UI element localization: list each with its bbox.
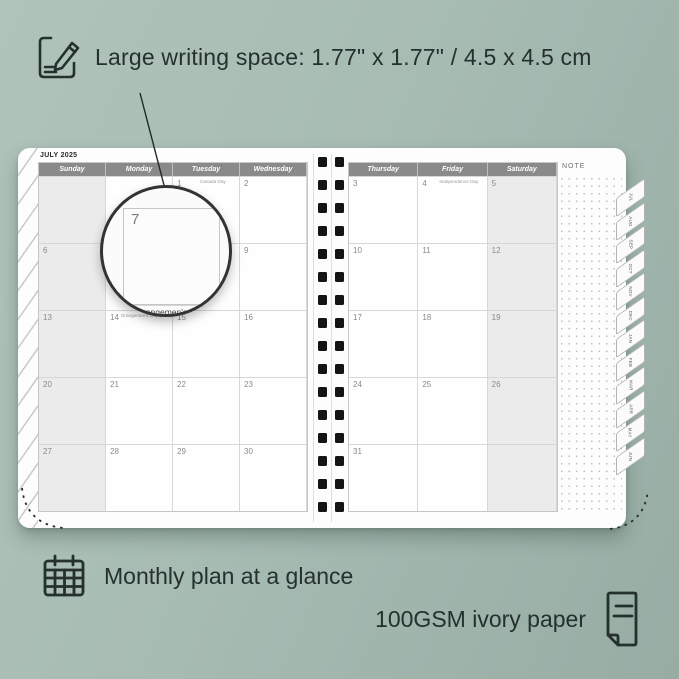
paper-sheet-icon (602, 591, 642, 647)
day-number: 17 (353, 313, 362, 322)
binding-hole (318, 157, 327, 167)
top-annotation: Large writing space: 1.77" x 1.77" / 4.5… (36, 33, 592, 81)
note-label: NOTE (562, 163, 585, 170)
day-number: 4 (422, 179, 426, 188)
binding-hole (318, 479, 327, 489)
binding-hole (335, 180, 344, 190)
calendar-cell: 9 (240, 243, 307, 310)
day-number: 20 (43, 380, 52, 389)
calendar-cell: 23 (240, 377, 307, 444)
binding-hole (335, 502, 344, 512)
day-number: 24 (353, 380, 362, 389)
day-header: Saturday (488, 163, 557, 176)
month-tab-label: JAN (628, 334, 633, 343)
binding-hole (318, 456, 327, 466)
binding-hole (335, 226, 344, 236)
binding-hole (335, 387, 344, 397)
day-number: 9 (244, 246, 248, 255)
day-number: 28 (110, 447, 119, 456)
calendar-cell: 15 (173, 310, 240, 377)
day-header: Sunday (39, 163, 106, 176)
binding-hole (318, 318, 327, 328)
magnifier-circle: 7 Orangemen's D (100, 185, 232, 317)
day-number: 10 (353, 246, 362, 255)
page-edge-hatching (18, 148, 38, 528)
day-number: 11 (422, 246, 430, 255)
binding-hole (318, 502, 327, 512)
calendar-cell (39, 176, 106, 243)
bottom-left-annotation: Monthly plan at a glance (42, 553, 353, 599)
calendar-cell: 27 (39, 444, 106, 511)
binding-hole (335, 318, 344, 328)
day-number: 2 (244, 179, 248, 188)
day-header-label: Wednesday (254, 166, 293, 173)
page-inner-edge (313, 154, 314, 522)
day-number: 13 (43, 313, 52, 322)
calendar-grid-right: ThursdayFridaySaturday34Independence Day… (348, 162, 558, 512)
day-header-label: Saturday (507, 166, 537, 173)
day-number: 31 (353, 447, 362, 456)
month-tab-label: OCT (628, 263, 633, 273)
calendar-cell: 14Orangemen's Day (N.L.) (106, 310, 173, 377)
day-number: 16 (244, 313, 253, 322)
month-tab-label: APR (628, 404, 633, 414)
calendar-cell: 24 (349, 377, 418, 444)
binding-hole (318, 410, 327, 420)
calendar-cell: 3 (349, 176, 418, 243)
day-number: 29 (177, 447, 186, 456)
calendar-cell: 19 (488, 310, 557, 377)
binding-hole (335, 249, 344, 259)
day-header-label: Monday (126, 166, 152, 173)
calendar-cell: 30 (240, 444, 307, 511)
binding-hole (318, 364, 327, 374)
day-header: Friday (418, 163, 487, 176)
day-number: 25 (422, 380, 431, 389)
day-header: Tuesday (173, 163, 240, 176)
calendar-cell: 26 (488, 377, 557, 444)
calendar-cell: 21 (106, 377, 173, 444)
binding-hole (318, 249, 327, 259)
day-header-label: Friday (442, 166, 463, 173)
binding-hole (335, 433, 344, 443)
calendar-cell: 11 (418, 243, 487, 310)
calendar-cell: 28 (106, 444, 173, 511)
day-number: 30 (244, 447, 253, 456)
month-tab-label: NOV (628, 286, 633, 296)
top-annotation-text: Large writing space: 1.77" x 1.77" / 4.5… (95, 44, 592, 71)
planner-spread: JULY 2025 SundayMondayTuesdayWednesday1C… (18, 148, 626, 528)
calendar-cell: 29 (173, 444, 240, 511)
calendar-cell: 17 (349, 310, 418, 377)
day-number: 3 (353, 179, 357, 188)
binding-hole (318, 341, 327, 351)
binding-hole (335, 272, 344, 282)
binding-hole (335, 203, 344, 213)
day-header-label: Sunday (59, 166, 84, 173)
note-dot-grid (558, 175, 622, 512)
bottom-left-text: Monthly plan at a glance (104, 563, 353, 590)
calendar-cell (418, 444, 487, 511)
day-number: 5 (492, 179, 496, 188)
product-image: Large writing space: 1.77" x 1.77" / 4.5… (0, 0, 679, 679)
note-pencil-icon (36, 33, 82, 81)
binding-hole (335, 410, 344, 420)
calendar-cell: 4Independence Day (418, 176, 487, 243)
binding-hole (318, 203, 327, 213)
month-tab-label: MAY (628, 427, 633, 437)
binding-hole (335, 157, 344, 167)
binding-hole (318, 387, 327, 397)
day-header-label: Thursday (367, 166, 399, 173)
calendar-cell: 20 (39, 377, 106, 444)
calendar-cell: 6 (39, 243, 106, 310)
day-number: 12 (492, 246, 501, 255)
day-number: 6 (43, 246, 47, 255)
page-inner-edge (331, 154, 332, 522)
month-tab-label: SEP (628, 240, 633, 250)
day-header: Thursday (349, 163, 418, 176)
calendar-grid-icon (42, 553, 86, 599)
binding-hole (318, 226, 327, 236)
calendar-cell: 12 (488, 243, 557, 310)
month-tab-label: JUN (628, 451, 633, 460)
day-number: 21 (110, 380, 119, 389)
binding-hole (318, 433, 327, 443)
calendar-cell: 18 (418, 310, 487, 377)
magnified-day-number: 7 (131, 211, 139, 228)
binding-hole (318, 180, 327, 190)
binding-hole (335, 295, 344, 305)
day-number: 23 (244, 380, 253, 389)
calendar-cell: 31 (349, 444, 418, 511)
binding-hole (335, 341, 344, 351)
calendar-cell: 16 (240, 310, 307, 377)
bottom-right-annotation: 100GSM ivory paper (375, 591, 642, 647)
day-header-label: Tuesday (192, 166, 220, 173)
month-title: JULY 2025 (40, 152, 77, 159)
month-tab-label: AUG (628, 216, 633, 226)
binding-hole (318, 272, 327, 282)
day-header: Monday (106, 163, 173, 176)
binding-hole (318, 295, 327, 305)
binding-hole (335, 479, 344, 489)
day-number: 26 (492, 380, 501, 389)
calendar-cell: 2 (240, 176, 307, 243)
month-tab-label: FEB (628, 357, 633, 366)
holiday-label: Independence Day (432, 179, 485, 189)
day-number: 22 (177, 380, 186, 389)
day-number: 27 (43, 447, 52, 456)
month-tab-label: MAR (628, 380, 633, 391)
calendar-cell (488, 444, 557, 511)
calendar-cell: 10 (349, 243, 418, 310)
month-tab-label: DEC (628, 310, 633, 320)
calendar-cell: 13 (39, 310, 106, 377)
day-number: 18 (422, 313, 431, 322)
day-number: 14 (110, 313, 119, 322)
day-number: 19 (492, 313, 501, 322)
calendar-cell: 22 (173, 377, 240, 444)
day-header: Wednesday (240, 163, 307, 176)
holiday-label: Canada Day (187, 179, 238, 189)
calendar-cell: 5 (488, 176, 557, 243)
calendar-cell: 25 (418, 377, 487, 444)
binding-hole (335, 364, 344, 374)
bottom-right-text: 100GSM ivory paper (375, 606, 586, 633)
month-tab-label: JUL (628, 193, 633, 202)
binding-hole (335, 456, 344, 466)
